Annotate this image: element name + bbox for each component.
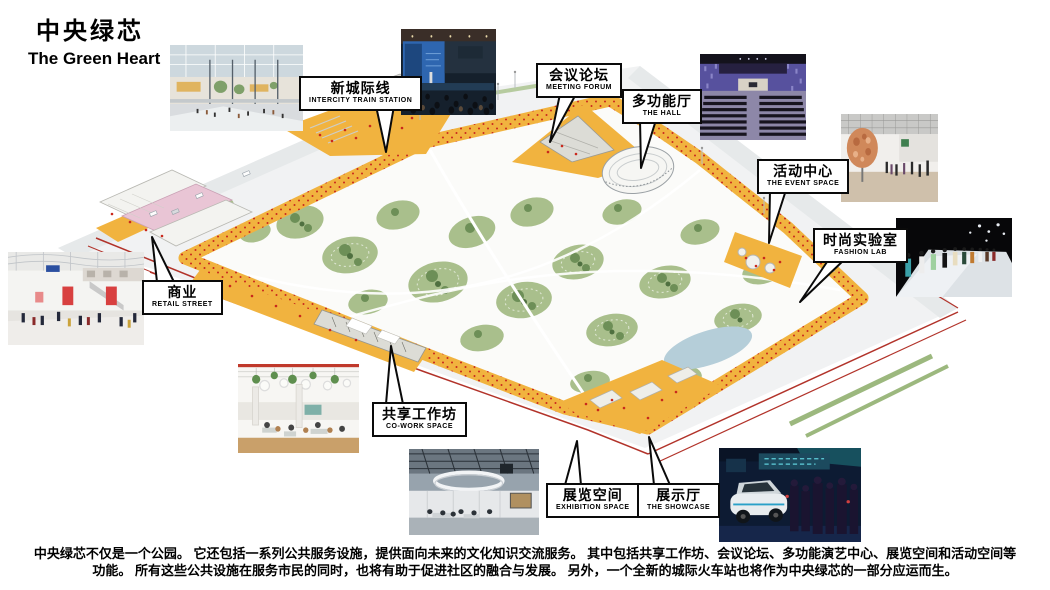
callout-en-label: INTERCITY TRAIN STATION [309, 97, 412, 106]
photo-co-work-cafe [238, 364, 359, 453]
callout-en-label: EXHIBITION SPACE [556, 504, 630, 513]
title-block: 中央绿芯 The Green Heart [28, 18, 160, 69]
callout-en-label: THE SHOWCASE [647, 504, 710, 513]
callout-zh-label: 会议论坛 [546, 67, 612, 84]
callout-en-label: THE EVENT SPACE [767, 180, 839, 189]
callout-event-space: 活动中心 THE EVENT SPACE [757, 159, 849, 194]
callout-en-label: MEETING FORUM [546, 84, 612, 93]
callout-fashion-lab: 时尚实验室 FASHION LAB [813, 228, 908, 263]
photo-mall-atrium-render [170, 45, 303, 131]
photo-gallery-sphere-event [841, 114, 938, 202]
callout-zh-label: 展览空间 [556, 487, 630, 504]
callout-co-work-space: 共享工作坊 CO-WORK SPACE [372, 402, 467, 437]
callout-en-label: THE HALL [632, 110, 692, 119]
callout-intercity-train-station: 新城际线 INTERCITY TRAIN STATION [299, 76, 422, 111]
callout-zh-label: 多功能厅 [632, 93, 692, 110]
callout-en-label: RETAIL STREET [152, 301, 213, 310]
page-title-zh: 中央绿芯 [28, 18, 160, 47]
photo-retail-mall-interior [8, 252, 144, 345]
callout-zh-label: 商业 [152, 284, 213, 301]
callout-en-label: CO-WORK SPACE [382, 423, 457, 432]
photo-fashion-runway [896, 218, 1012, 297]
callout-zh-label: 展示厅 [647, 487, 710, 504]
photo-exhibition-hall-ring [409, 449, 539, 535]
description-line-2: 功能。 所有这些公共设施在服务市民的同时，也将有助于促进社区的融合与发展。 另外… [16, 562, 1034, 579]
callout-zh-label: 活动中心 [767, 163, 839, 180]
callout-zh-label: 共享工作坊 [382, 406, 457, 423]
photo-car-showcase [719, 448, 861, 542]
callout-the-showcase: 展示厅 THE SHOWCASE [637, 483, 720, 518]
project-description: 中央绿芯不仅是一个公园。 它还包括一系列公共服务设施，提供面向未来的文化知识交流… [16, 545, 1034, 579]
callout-zh-label: 新城际线 [309, 80, 412, 97]
callout-retail-street: 商业 RETAIL STREET [142, 280, 223, 315]
callout-the-hall: 多功能厅 THE HALL [622, 89, 702, 124]
callout-exhibition-space: 展览空间 EXHIBITION SPACE [546, 483, 640, 518]
callout-meeting-forum: 会议论坛 MEETING FORUM [536, 63, 622, 98]
description-line-1: 中央绿芯不仅是一个公园。 它还包括一系列公共服务设施，提供面向未来的文化知识交流… [16, 545, 1034, 562]
photo-auditorium-hall [700, 54, 806, 140]
page-title-en: The Green Heart [28, 49, 160, 69]
slide-green-heart: { "slide": { "title_zh": "中央绿芯", "title_… [0, 0, 1050, 590]
callout-zh-label: 时尚实验室 [823, 232, 898, 249]
callout-en-label: FASHION LAB [823, 249, 898, 258]
